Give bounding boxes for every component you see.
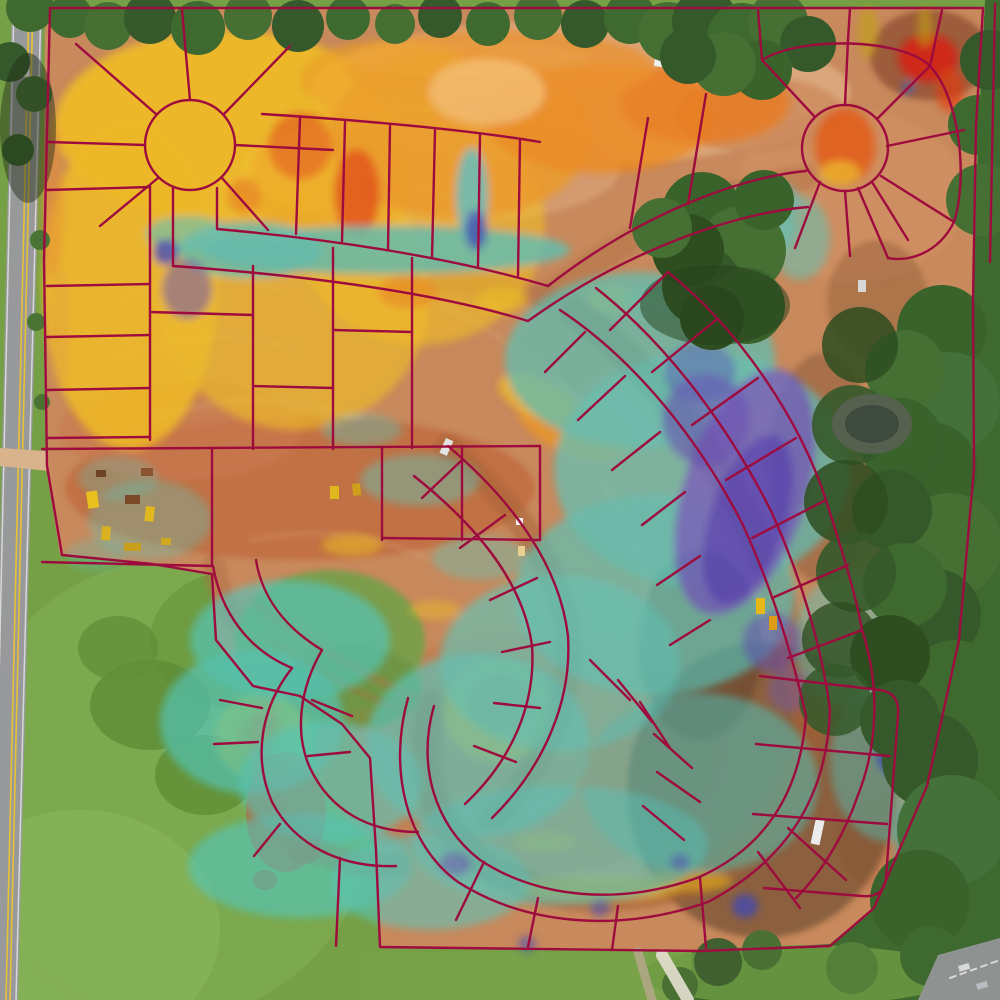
heat-blob xyxy=(582,693,818,873)
tree-canopy xyxy=(632,198,692,258)
tree-canopy xyxy=(822,307,898,383)
heat-blob xyxy=(429,59,545,125)
machine xyxy=(141,468,153,476)
heat-blob xyxy=(732,894,758,918)
machine xyxy=(86,490,99,508)
machine xyxy=(124,543,141,551)
heat-blob xyxy=(432,536,528,580)
machine xyxy=(96,470,106,477)
heat-blob xyxy=(917,6,933,46)
heat-blob xyxy=(465,210,487,250)
heat-blob xyxy=(330,834,530,930)
heat-blob xyxy=(820,161,860,185)
machine xyxy=(144,506,155,522)
tree-canopy xyxy=(27,313,45,331)
machine xyxy=(352,483,361,496)
orthomosaic-map xyxy=(0,0,1000,1000)
tree-canopy xyxy=(30,230,50,250)
heat-blob xyxy=(858,6,878,58)
tree-canopy xyxy=(845,405,899,443)
heat-blob xyxy=(670,853,690,871)
heat-blob xyxy=(590,899,610,917)
machine xyxy=(101,526,111,541)
machine xyxy=(769,616,777,630)
heat-blob xyxy=(153,239,179,265)
heat-blob xyxy=(439,852,471,876)
heat-blob xyxy=(334,149,380,237)
heat-blob xyxy=(50,270,70,390)
tree-canopy xyxy=(375,4,415,44)
heat-blob xyxy=(322,534,382,556)
grass-patch xyxy=(78,616,158,680)
map-canvas[interactable] xyxy=(0,0,1000,1000)
machine xyxy=(858,280,866,292)
heat-blob xyxy=(227,178,261,214)
boundary-line xyxy=(47,437,150,438)
machine xyxy=(330,486,339,499)
tree-canopy xyxy=(799,664,871,736)
tree-canopy xyxy=(826,942,878,994)
heat-blob xyxy=(409,600,461,620)
machine xyxy=(756,598,765,614)
machine xyxy=(161,538,171,545)
machine xyxy=(125,495,140,504)
heat-blob xyxy=(664,342,736,402)
tree-canopy xyxy=(34,394,50,410)
tree-canopy xyxy=(660,28,716,84)
machine xyxy=(518,546,525,556)
tree-canopy xyxy=(694,938,742,986)
